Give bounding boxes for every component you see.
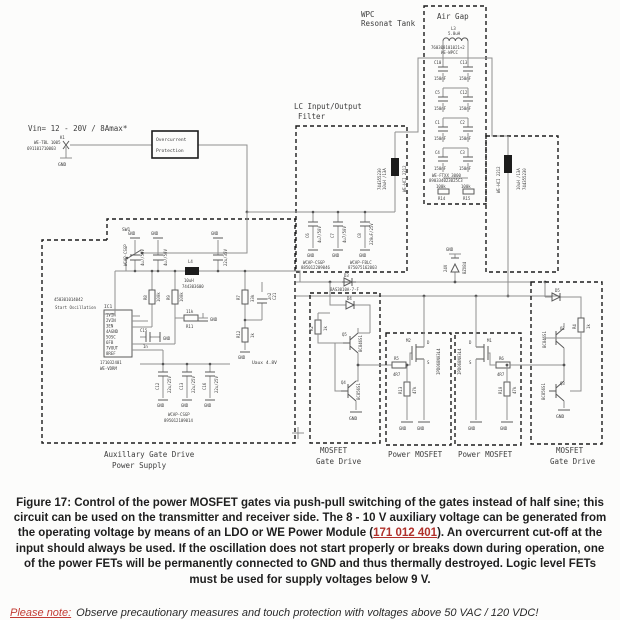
aux-output-caps: C12 22u/25V C13 22u/25V C16 22u/25V GND … <box>132 350 230 423</box>
r10-name: R10 <box>498 386 503 394</box>
cap-name: C10 <box>434 60 442 65</box>
r7-value: 33k <box>250 294 255 302</box>
l3-series: WE-WPCC <box>441 50 458 55</box>
l1-value: 10uH /13A <box>382 168 387 190</box>
r5-value: 4R7 <box>393 372 401 377</box>
r6-value: 4R7 <box>497 372 505 377</box>
l2-series: WE-HCI 2212 <box>496 166 501 193</box>
gnd-label: GND <box>238 355 246 360</box>
r14-name: R14 <box>438 196 446 201</box>
power-mosfet-1-section: Power MOSFET R5 4R7 M2 D S IPD068N03L4 R… <box>386 296 451 459</box>
cap-name: C1 <box>435 120 440 125</box>
r4-name: R4 <box>572 324 577 329</box>
d3-part: BAS3010A-7-F <box>330 287 359 292</box>
q3-pnp: Q3 BC856S1 <box>510 348 565 408</box>
gnd-label: GND <box>446 247 454 252</box>
tank-title-1: WPC <box>361 10 375 19</box>
r13-name: R13 <box>398 386 403 394</box>
overcurrent-line1: Overcurrent <box>156 137 187 143</box>
power-mosfet-2-section: Power MOSFET M1 D S IPD068N03L4 R6 4R7 R… <box>455 296 521 459</box>
uaux-label: Uaux 4.8V <box>252 360 277 366</box>
r15-value: 100k <box>461 184 471 189</box>
gnd-label: GND <box>349 416 358 422</box>
r11-name: R11 <box>186 324 194 329</box>
l4-value: 10uH <box>184 278 194 283</box>
c15-value: 1n <box>143 344 148 349</box>
connector-refdes: K1 <box>60 135 65 140</box>
c15-name: C15 <box>140 328 148 333</box>
gnd-label: GND <box>211 231 219 236</box>
q5-npn: Q5 BC846S1 <box>335 328 370 353</box>
q4-part: BC856S1 <box>356 383 361 400</box>
please-note-text: Observe precautionary measures and touch… <box>76 607 538 619</box>
connector-part: 691101710003 <box>27 146 56 151</box>
vin-label: Vin= 12 - 20V / 8Amax* <box>28 124 127 133</box>
q5-part: BC846S1 <box>358 335 363 352</box>
gdr-title-1: MOSFET <box>556 446 584 455</box>
gnd-label: GND <box>163 336 171 341</box>
l4-refdes: L4 <box>188 259 193 264</box>
tank-cap-row-4: C4 C3 150nF 150nF <box>434 148 473 172</box>
l1-series: WE-HCI 2212 <box>402 165 407 192</box>
cap-name: C4 <box>435 150 440 155</box>
tank-cap-part: 890334023025C3 <box>429 178 463 183</box>
r4-value: 1k <box>586 324 591 329</box>
gnd-label: GND <box>556 414 565 420</box>
please-note: Please note:Observe precautionary measur… <box>10 607 614 619</box>
c7-value: 4u7/50V <box>342 226 347 243</box>
r9-name: R9 <box>166 295 171 300</box>
circuit-schematic: Vin= 12 - 20V / 8Amax* K1 WE-TBL 1005 69… <box>0 0 620 478</box>
m1-mosfet: M1 D S IPD068N03L4 <box>457 296 492 420</box>
input-section: Vin= 12 - 20V / 8Amax* K1 WE-TBL 1005 69… <box>27 124 248 213</box>
cap-name: C12 <box>155 382 160 390</box>
aux-r8-r9: R8 100k R9 100k <box>143 270 184 344</box>
source-label: S <box>427 360 430 365</box>
tank-cap-row-2: C5 C12 150nF 150nF <box>434 88 473 112</box>
cap-part: 895012109014 <box>164 418 193 423</box>
d5-refdes: D5 <box>555 288 560 293</box>
gnd-label: GND <box>204 403 212 408</box>
r8-value: 100k <box>156 292 161 302</box>
gnd-label: GND <box>157 403 165 408</box>
tank-cap-row-1: C10 C13 150nF 150nF <box>434 58 473 82</box>
m2-part: IPD068N03L4 <box>436 348 441 375</box>
gnd-label: GND <box>151 231 159 236</box>
cap-name: C12 <box>460 90 468 95</box>
tank-cap-row-3: C1 C2 150nF 150nF <box>434 118 473 142</box>
r12-name: R12 <box>236 330 241 338</box>
cap-part-2: 875075162003 <box>348 265 377 270</box>
air-gap-label: Air Gap <box>437 12 469 21</box>
gnd-label: GND <box>500 426 508 431</box>
q4-refdes: Q4 <box>341 380 346 385</box>
cap-value: 150nF <box>434 76 447 81</box>
l3-coil-icon <box>443 38 468 41</box>
lc-title-1: LC Input/Output <box>294 102 362 111</box>
ic1-pin: 7VOUT <box>106 346 119 351</box>
lc-title-2: Filter <box>298 112 326 121</box>
gnd-label: GND <box>417 426 425 431</box>
gate-drive-left-section: MOSFET Gate Drive D4 R2 1k Q5 BC846S1 Q4… <box>309 282 392 466</box>
m2-mosfet: M2 D S IPD068N03L4 <box>406 296 441 420</box>
cap-value: 150nF <box>434 136 447 141</box>
part-number-link[interactable]: 171 012 401 <box>373 527 437 539</box>
r11-value: 11k <box>186 309 194 314</box>
ic1-pin: 4AGND <box>106 329 119 334</box>
m1-refdes: M1 <box>487 338 492 343</box>
gnd-label: GND <box>128 231 136 236</box>
l1-icon <box>391 158 399 176</box>
gnd-label: GND <box>359 253 367 258</box>
gnd-label: GND <box>210 317 218 322</box>
gnd-label: GND <box>307 253 315 258</box>
zener-part: BZX84 <box>462 261 467 274</box>
r9-value: 100k <box>179 292 184 302</box>
lc-filter-section: LC Input/Output Filter 10uH /13A 7443552… <box>247 102 558 297</box>
q2-npn: Q2 BC846S1 <box>542 323 570 348</box>
aux-supply-section: Auxillary Gate Drive Power Supply SW1 45… <box>42 212 300 470</box>
please-note-label: Please note: <box>10 607 71 619</box>
aux-title-1: Auxillary Gate Drive <box>104 450 195 459</box>
cap-name: C5 <box>435 90 440 95</box>
ic1-refdes: IC1 <box>104 304 113 310</box>
cap-value: 4u7/50V <box>140 249 145 266</box>
r2-value: 1k <box>323 326 328 331</box>
cap-value: 150nF <box>459 76 472 81</box>
ic1-pin: 5OSC <box>106 335 116 340</box>
r14-value: 100k <box>436 184 446 189</box>
r6-name: R6 <box>499 356 504 361</box>
aux-title-2: Power Supply <box>112 461 167 470</box>
q3-part: BC856S1 <box>541 383 546 400</box>
ic1-pin: 2VIN <box>106 318 116 323</box>
crosshair-mark <box>292 427 304 439</box>
gdr-title-2: Gate Drive <box>550 457 596 466</box>
m1-part: IPD068N03L4 <box>457 348 462 375</box>
r2-name: R2 <box>309 326 314 331</box>
gnd-label: GND <box>181 403 189 408</box>
sw1-part: 450301014042 <box>54 297 83 302</box>
q4-pnp: Q4 BC856S1 <box>335 343 392 410</box>
r13-value: 47k <box>412 386 417 394</box>
cap-value: 22u/25V <box>167 376 172 393</box>
r8-name: R8 <box>143 295 148 300</box>
overcurrent-protection-box: Overcurrent Protection <box>152 131 198 158</box>
d4-refdes: D4 <box>347 296 352 301</box>
l2-value: 10uH /13A <box>516 168 521 190</box>
cap-part-1: 885012209046 <box>301 265 330 270</box>
start-oscillation-label: Start Oscillation <box>55 305 97 310</box>
ic1-series: WE-VDRM <box>100 366 117 371</box>
ic1-pin: 8REF <box>106 351 116 356</box>
cap-name: C16 <box>202 382 207 390</box>
zener-icon <box>451 258 459 272</box>
r10-value: 47k <box>512 386 517 394</box>
ic1-pin: 6FB <box>106 340 114 345</box>
lc-input-caps: C6 4u7/50V C7 4u7/50V C8 220uF/25V GND G… <box>301 211 377 270</box>
cap-value: 150nF <box>459 136 472 141</box>
c8-name: C8 <box>357 233 362 238</box>
l2-icon <box>504 155 512 173</box>
cap-value: 150nF <box>434 106 447 111</box>
q2-part: BC846S1 <box>542 331 547 348</box>
r15-name: R15 <box>463 196 471 201</box>
l2-part: 744355230 <box>522 168 527 190</box>
c7-name: C7 <box>330 233 335 238</box>
aux-feedback-cluster: R7 33k R12 1k 2n2 C21 GND Uaux 4.8V <box>236 270 277 366</box>
overcurrent-line2: Protection <box>156 148 184 154</box>
cap-value: 4u7/50V <box>163 249 168 266</box>
cap-name: C2 <box>460 120 465 125</box>
cap-name: C3 <box>460 150 465 155</box>
cap-value: 22u/25V <box>191 376 196 393</box>
tank-bleed-resistors: 100k 100k R14 R15 <box>436 184 474 201</box>
gnd-label: GND <box>468 426 476 431</box>
cap-name: C13 <box>179 382 184 390</box>
cap-value: 22u/35V <box>223 249 228 266</box>
c21-name: C21 <box>272 292 277 300</box>
gdl-title-1: MOSFET <box>320 446 348 455</box>
l1-part: 744355230 <box>377 168 382 190</box>
drain-label: D <box>427 340 430 345</box>
d4-icon <box>346 301 354 309</box>
pm2-title: Power MOSFET <box>458 450 513 459</box>
cap-name: C13 <box>460 60 468 65</box>
m2-refdes: M2 <box>406 338 411 343</box>
zener-value: 24V <box>443 264 448 272</box>
drain-label: D <box>469 340 472 345</box>
pm1-title: Power MOSFET <box>388 450 443 459</box>
l4-part: 744303600 <box>182 284 204 289</box>
c8-value: 220uF/25V <box>369 223 374 245</box>
gate-drive-right-section: MOSFET Gate Drive D5 R4 1k Q2 BC846S1 Q3… <box>510 282 602 466</box>
gnd-label: GND <box>399 426 407 431</box>
cap-value: 150nF <box>434 166 447 171</box>
d3-refdes: D3 <box>344 273 349 278</box>
r5-name: R5 <box>394 356 399 361</box>
cap-value: 150nF <box>459 106 472 111</box>
c6-name: C6 <box>305 233 310 238</box>
gnd-label: GND <box>332 253 340 258</box>
lc-right-box <box>486 136 558 272</box>
source-label: S <box>469 360 472 365</box>
q5-refdes: Q5 <box>342 332 347 337</box>
d3-icon <box>342 278 356 286</box>
cap-series: WCAP-CSGP <box>168 412 190 417</box>
cap-value: 150nF <box>459 166 472 171</box>
l3-value: 5.0uH <box>448 31 461 36</box>
r12-value: 1k <box>250 333 255 338</box>
c6-value: 4u7/50V <box>317 226 322 243</box>
figure-caption: Figure 17: Control of the power MOSFET g… <box>12 496 608 588</box>
d5-icon <box>552 293 560 301</box>
r7-name: R7 <box>236 295 241 300</box>
ic1-part: 171032401 <box>100 360 122 365</box>
l4-icon <box>185 267 199 275</box>
ic1-pin: 3EN <box>106 324 114 329</box>
ic1: IC1 1VIN 2VIN 3EN 4AGND 5OSC 6FB 7VOUT 8… <box>100 271 175 371</box>
gate-drive-right-box <box>531 282 602 444</box>
gdl-title-2: Gate Drive <box>316 457 362 466</box>
input-gnd: GND <box>58 162 67 168</box>
tank-title-2: Resonat Tank <box>361 19 416 28</box>
connector-series: WE-TBL 1005 <box>34 140 61 145</box>
cap-series: WCAP-CSGP <box>123 244 128 266</box>
cap-value: 22u/25V <box>214 376 219 393</box>
